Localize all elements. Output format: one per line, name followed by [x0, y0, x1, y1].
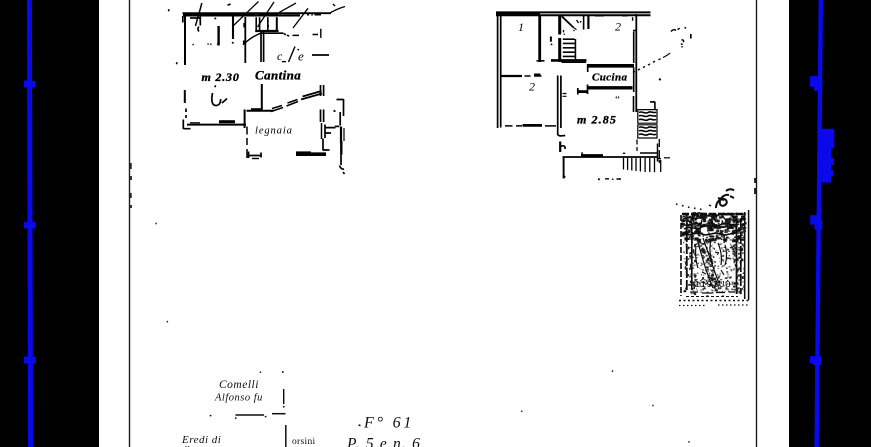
svg-text:1: 1 [518, 20, 524, 34]
svg-text:m 2.85: m 2.85 [577, 113, 617, 127]
svg-text:m 2.30: m 2.30 [202, 70, 240, 84]
svg-text:“: “ [614, 94, 620, 106]
svg-text:Cantina: Cantina [255, 68, 301, 83]
svg-text:2: 2 [615, 20, 621, 34]
svg-text:2: 2 [529, 80, 535, 94]
svg-text:P. 5 e n. 6: P. 5 e n. 6 [346, 436, 421, 447]
svg-text:legnaia: legnaia [255, 126, 293, 137]
svg-text:e: e [298, 49, 304, 64]
svg-text:Alfonso fu: Alfonso fu [214, 393, 263, 404]
svg-text:Comelli: Comelli [219, 379, 259, 391]
svg-text:F° 61: F° 61 [363, 415, 414, 432]
svg-text:Cucina: Cucina [592, 72, 628, 84]
svg-text:1193U0: 1193U0 [694, 279, 731, 290]
